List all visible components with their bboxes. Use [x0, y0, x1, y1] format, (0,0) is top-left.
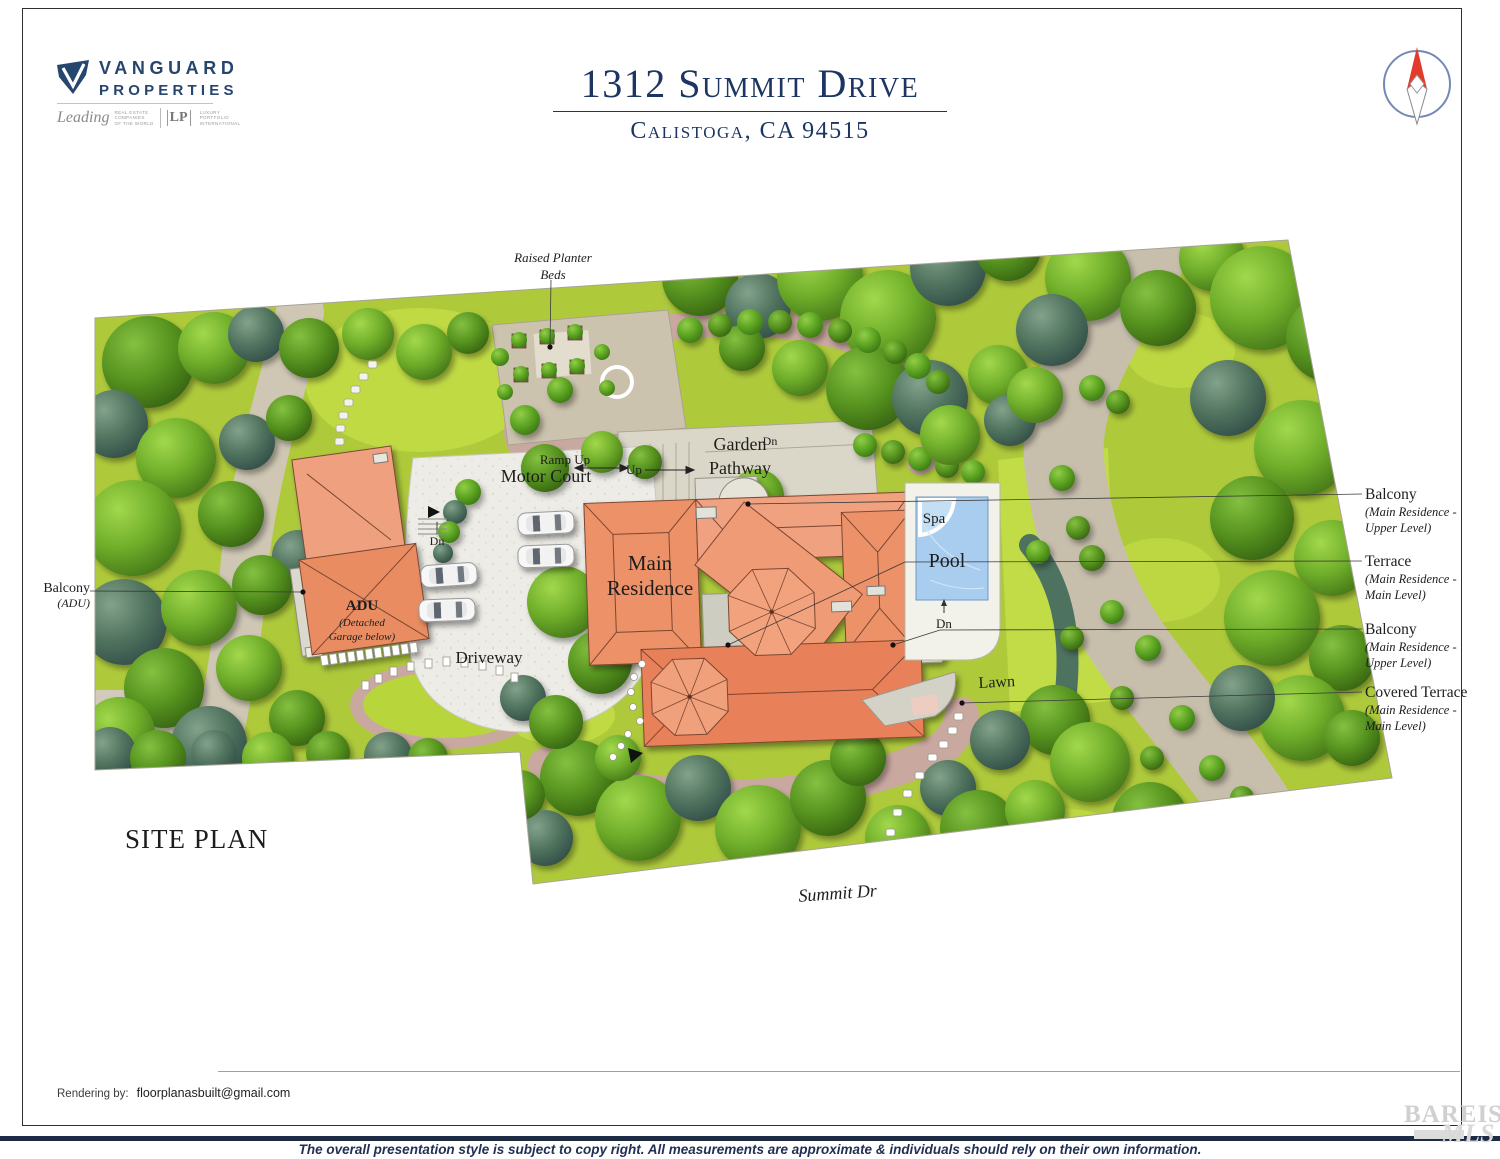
label-main-residence-1: Main — [628, 551, 673, 575]
label-driveway: Driveway — [455, 648, 523, 667]
footer-accent-bar — [0, 1136, 1500, 1141]
label-lawn: Lawn — [978, 673, 1015, 692]
annotation-balcony-upper-1: Balcony (Main Residence - Upper Level) — [1365, 486, 1457, 535]
label-site-plan: SITE PLAN — [125, 824, 268, 854]
plan-ground — [80, 215, 1392, 884]
label-raised-planter-1: Raised Planter — [513, 250, 593, 265]
label-pool: Pool — [929, 550, 966, 572]
annotation-line: (Main Residence - — [1365, 640, 1457, 654]
site-plan-rendering: Raised Planter Beds Ramp Up Motor Court … — [0, 0, 1500, 1159]
annotation-title: Balcony — [1365, 486, 1417, 503]
annotation-balcony-upper-2: Balcony (Main Residence - Upper Level) — [1365, 621, 1457, 670]
label-balcony-adu-sub: (ADU) — [57, 596, 90, 610]
annotation-terrace: Terrace (Main Residence - Main Level) — [1364, 553, 1457, 602]
label-raised-planter-2: Beds — [540, 267, 565, 282]
annotation-line: (Main Residence - — [1365, 703, 1457, 717]
copyright-text: The overall presentation style is subjec… — [0, 1142, 1500, 1157]
label-ramp-up: Ramp Up — [540, 452, 590, 467]
label-garden-2: Pathway — [709, 458, 771, 478]
annotation-line: Upper Level) — [1365, 521, 1431, 535]
label-summit-dr: Summit Dr — [798, 880, 879, 905]
annotation-line: Main Level) — [1364, 719, 1426, 733]
label-main-residence-2: Residence — [607, 576, 693, 600]
annotation-line: Main Level) — [1364, 588, 1426, 602]
annotation-covered-terrace: Covered Terrace (Main Residence - Main L… — [1364, 684, 1467, 733]
label-dn-adu: Dn — [430, 534, 445, 548]
annotation-title: Terrace — [1365, 553, 1411, 570]
annotation-line: (Main Residence - — [1365, 505, 1457, 519]
annotation-title: Covered Terrace — [1365, 684, 1467, 701]
mls-watermark: MLS — [1441, 1119, 1494, 1149]
label-dn-garden: Dn — [763, 434, 778, 448]
annotation-line: Upper Level) — [1365, 656, 1431, 670]
label-up: Up — [626, 462, 642, 477]
label-adu-sub2: Garage below) — [329, 631, 396, 643]
label-dn-pool: Dn — [936, 616, 952, 631]
label-adu: ADU — [346, 598, 379, 614]
annotation-line: (Main Residence - — [1365, 572, 1457, 586]
label-garden-1: Garden — [714, 434, 767, 454]
label-balcony-adu: Balcony — [43, 581, 90, 596]
annotation-title: Balcony — [1365, 621, 1417, 638]
label-spa: Spa — [923, 511, 946, 527]
label-adu-sub1: (Detached — [339, 617, 385, 629]
label-motor-court: Motor Court — [501, 466, 592, 486]
site-plan-sheet: { "header": { "logo": { "name1": "VANGUA… — [0, 0, 1500, 1159]
